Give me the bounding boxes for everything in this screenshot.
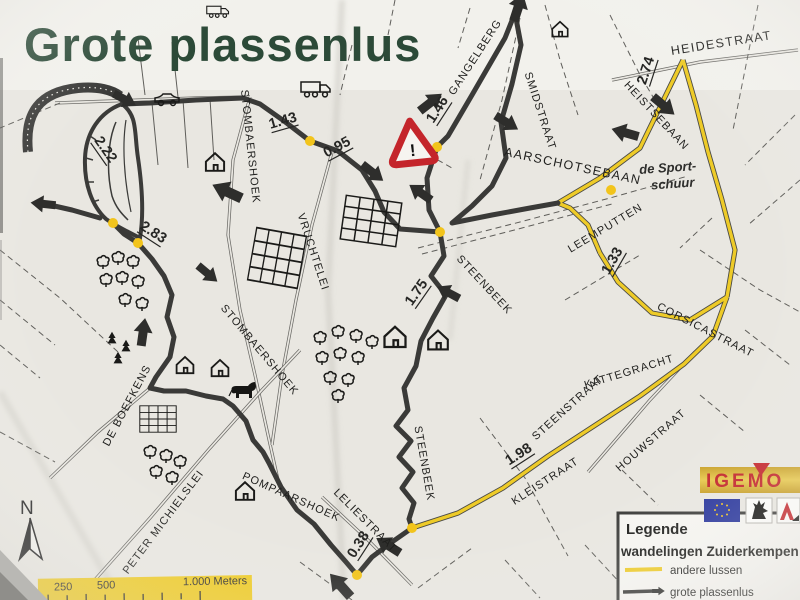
scale-label-500: 500 — [97, 579, 116, 591]
igemo-wordmark: IGEMO — [706, 471, 784, 492]
scanned-walking-map: STOMBAERSHOEK STOMBAERSHOEK VRUCHTELEI G… — [0, 0, 800, 600]
eu-flag-icon — [704, 499, 740, 522]
legend-item-label: grote plassenlus — [670, 587, 754, 599]
scale-bar: 250 500 1.000 Meters — [38, 575, 252, 600]
legend-item-label: andere lussen — [670, 565, 742, 577]
scale-label-250: 250 — [54, 581, 73, 593]
legend-sample-main-route — [623, 591, 655, 592]
scale-label-1000: 1.000 Meters — [183, 575, 248, 588]
legend-sample-other-loops — [625, 569, 662, 570]
legend-subtitle: wandelingen Zuiderkempen — [620, 544, 799, 559]
legend-heading: Legende — [626, 521, 688, 538]
lion-logo-icon — [746, 498, 772, 523]
province-a-logo-icon — [777, 498, 800, 523]
map-title: Grote plassenlus — [24, 18, 421, 71]
legend: Legende wandelingen Zuiderkempen andere … — [618, 513, 800, 600]
north-label: N — [20, 498, 34, 519]
landmark-label-line2: schuur — [651, 174, 696, 192]
map-canvas: STOMBAERSHOEK STOMBAERSHOEK VRUCHTELEI G… — [0, 0, 800, 600]
igemo-logo: IGEMO — [700, 463, 800, 523]
